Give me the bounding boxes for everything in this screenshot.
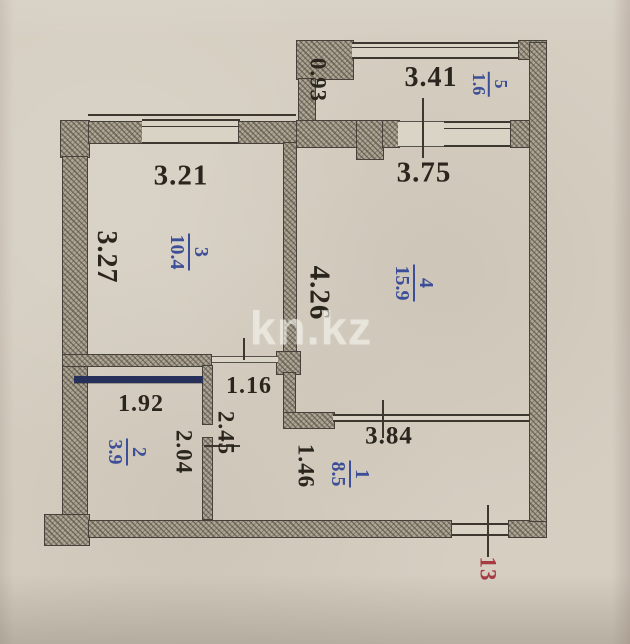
wall-room2-right-upper (202, 365, 213, 425)
wall-corner-bottom-right (508, 520, 547, 538)
opening-entry (452, 523, 510, 536)
room-4-number: 4 (413, 265, 437, 302)
room-2-number: 2 (126, 439, 150, 466)
window-room3 (142, 119, 240, 144)
room-1-area: 8.5 (327, 461, 349, 488)
partition-room4-room1 (333, 414, 529, 422)
room-5-area: 1.6 (468, 72, 488, 97)
bathtub-fixture (74, 376, 203, 383)
wall-room4-top-a (296, 120, 358, 148)
dimension-116: 1.16 (226, 374, 272, 398)
dim-tick-116 (243, 338, 245, 360)
dimension-146: 1.46 (295, 444, 318, 488)
wall-pier (356, 120, 384, 160)
wall-outer-face-line (88, 114, 296, 116)
scanned-floor-plan-page: 3.41 0.93 3.21 3.75 3.27 4.26 1.16 1.92 … (0, 0, 630, 644)
wall-bottom (88, 520, 452, 538)
wall-room2-top (62, 354, 212, 367)
window-balcony-top (352, 42, 520, 59)
room-3-area: 10.4 (166, 234, 188, 271)
wall-corner-top-left (60, 120, 90, 158)
dimension-093: 0.93 (307, 58, 330, 102)
wall-divider-hall-upper (283, 372, 296, 416)
watermark: kn.kz (250, 301, 373, 356)
wall-right (529, 42, 547, 522)
wall-corner-bottom-left (44, 514, 90, 546)
wall-left (62, 156, 88, 518)
room-1-number: 1 (349, 461, 373, 488)
window-room4-balcony (444, 121, 512, 147)
opening-room3-doorway (212, 356, 278, 363)
dimension-327: 3.27 (92, 231, 120, 284)
room-4-area: 15.9 (391, 265, 413, 302)
room-label-4: 4 15.9 (391, 265, 437, 302)
dimension-321: 3.21 (154, 162, 209, 191)
dimension-341: 3.41 (405, 64, 458, 92)
room-label-2: 2 3.9 (104, 439, 150, 466)
dimension-245: 2.45 (215, 411, 238, 455)
wall-room3-top-right-segment (238, 121, 298, 144)
room-label-5: 5 1.6 (468, 72, 510, 97)
room-label-1: 1 8.5 (327, 461, 373, 488)
wall-hall-corner (283, 412, 335, 429)
wall-room2-right-lower (202, 437, 213, 520)
room-3-number: 3 (188, 234, 212, 271)
room-2-area: 3.9 (104, 439, 126, 466)
room-5-number: 5 (488, 72, 510, 97)
entry-number: 13 (477, 557, 500, 582)
dimension-204: 2.04 (173, 430, 196, 474)
dimension-384: 3.84 (365, 424, 413, 449)
dimension-375: 3.75 (397, 159, 452, 188)
room-label-3: 3 10.4 (166, 234, 212, 271)
wall-room3-top-left-segment (88, 121, 144, 144)
dimension-192: 1.92 (118, 392, 164, 416)
dim-line-375 (422, 98, 424, 158)
dim-line-entry (487, 505, 489, 557)
